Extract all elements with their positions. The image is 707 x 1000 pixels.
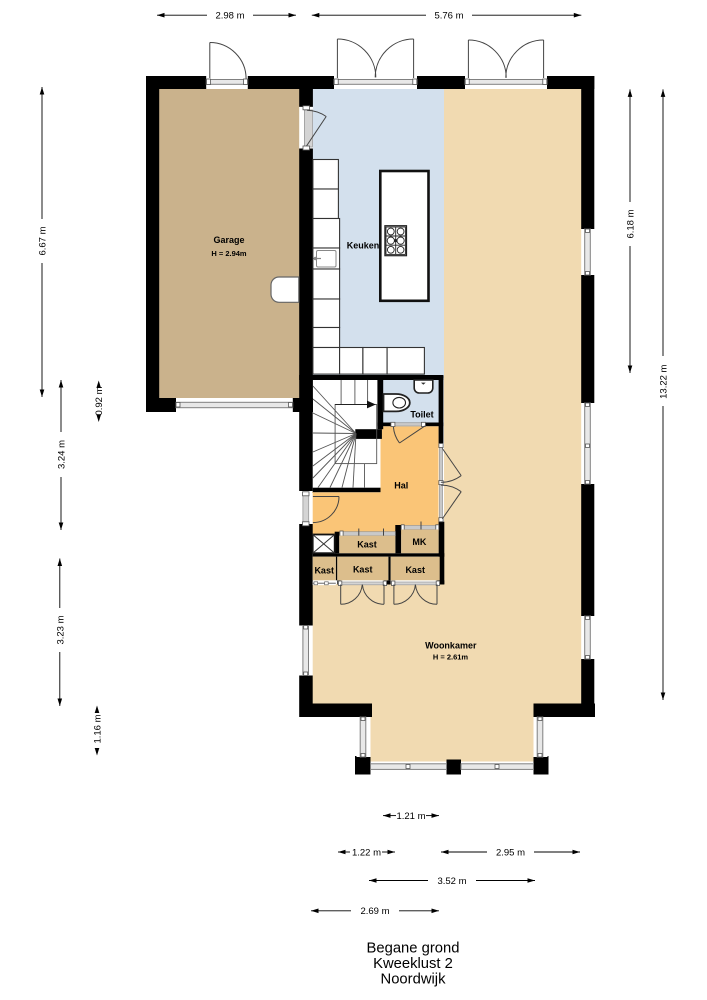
svg-text:Kast: Kast	[353, 565, 373, 575]
svg-text:6.67 m: 6.67 m	[38, 226, 49, 255]
svg-text:MK: MK	[412, 537, 426, 547]
svg-text:Kast: Kast	[357, 540, 377, 550]
svg-text:3.24 m: 3.24 m	[57, 440, 68, 469]
svg-text:H = 2.61m: H = 2.61m	[433, 653, 469, 662]
svg-text:3.52 m: 3.52 m	[437, 876, 466, 887]
svg-text:Kweeklust 2: Kweeklust 2	[373, 956, 453, 972]
svg-text:Kast: Kast	[405, 565, 425, 575]
svg-text:Kast: Kast	[314, 566, 334, 576]
svg-text:2.69 m: 2.69 m	[360, 906, 389, 917]
svg-text:1.21 m: 1.21 m	[396, 811, 425, 822]
svg-text:Keuken: Keuken	[347, 241, 380, 251]
svg-text:Hal: Hal	[394, 481, 408, 491]
svg-text:Toilet: Toilet	[410, 410, 433, 420]
svg-text:H = 2.94m: H = 2.94m	[211, 249, 247, 258]
svg-text:2.98 m: 2.98 m	[215, 11, 244, 22]
svg-text:1.16 m: 1.16 m	[93, 714, 104, 743]
svg-text:Garage: Garage	[213, 235, 244, 245]
svg-text:3.23 m: 3.23 m	[55, 615, 66, 644]
svg-text:Noordwijk: Noordwijk	[381, 972, 447, 988]
svg-text:Begane grond: Begane grond	[367, 941, 460, 957]
svg-text:6.18 m: 6.18 m	[626, 209, 637, 238]
svg-text:2.95 m: 2.95 m	[496, 847, 525, 858]
svg-text:13.22 m: 13.22 m	[659, 364, 670, 398]
svg-text:5.76 m: 5.76 m	[434, 11, 463, 22]
svg-text:Woonkamer: Woonkamer	[425, 641, 477, 651]
svg-text:1.22 m: 1.22 m	[352, 847, 381, 858]
svg-text:0.92 m: 0.92 m	[94, 386, 105, 415]
